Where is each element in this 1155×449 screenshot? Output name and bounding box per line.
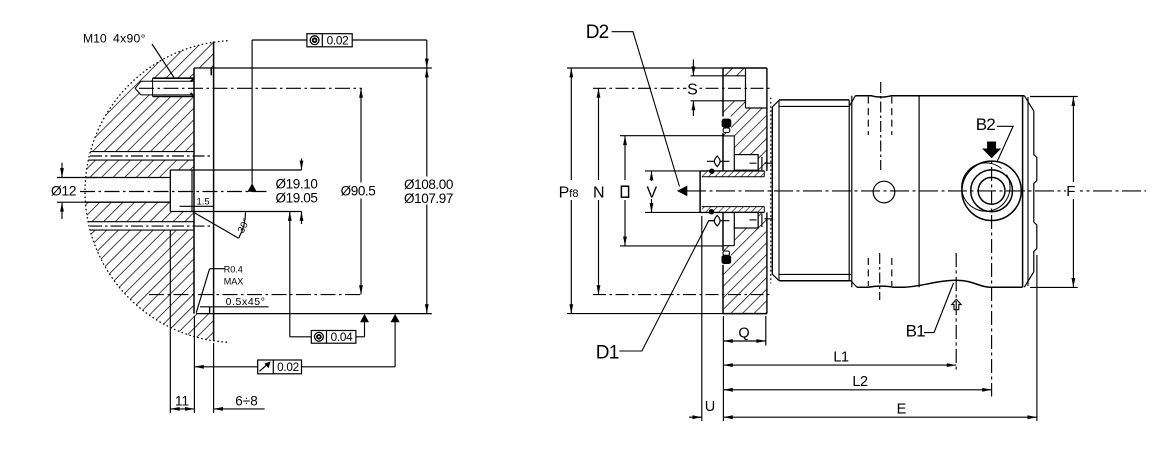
svg-text:B1: B1	[906, 321, 926, 340]
svg-text:P: P	[559, 184, 570, 201]
svg-text:N: N	[593, 184, 605, 201]
svg-text:0.5x45°: 0.5x45°	[226, 296, 266, 308]
svg-text:R0.4: R0.4	[224, 265, 243, 275]
svg-text:U: U	[705, 399, 715, 415]
svg-text:MAX: MAX	[224, 276, 244, 286]
svg-text:f8: f8	[569, 188, 578, 200]
svg-text:Ø108.00: Ø108.00	[404, 177, 453, 192]
svg-text:0.04: 0.04	[331, 330, 353, 344]
svg-text:S: S	[687, 81, 698, 98]
svg-text:B2: B2	[976, 115, 996, 134]
svg-text:M10: M10	[83, 32, 107, 46]
svg-text:D1: D1	[596, 343, 619, 364]
svg-text:Ø90.5: Ø90.5	[341, 183, 376, 198]
svg-text:0.02: 0.02	[277, 360, 299, 374]
svg-text:V: V	[646, 184, 657, 201]
svg-text:6÷8: 6÷8	[235, 394, 257, 409]
svg-text:F: F	[1066, 183, 1075, 200]
svg-text:L1: L1	[833, 349, 849, 365]
svg-text:Ø19.05: Ø19.05	[276, 191, 318, 206]
svg-text:Ø12: Ø12	[51, 183, 77, 199]
svg-text:11: 11	[175, 394, 189, 409]
svg-text:L2: L2	[852, 374, 868, 390]
svg-text:1.5: 1.5	[197, 196, 210, 207]
svg-text:0.02: 0.02	[327, 34, 349, 48]
svg-text:Q: Q	[738, 326, 749, 342]
svg-text:4x90°: 4x90°	[113, 32, 146, 46]
svg-text:Ø19.10: Ø19.10	[276, 177, 318, 192]
svg-text:D2: D2	[586, 22, 609, 43]
svg-text:Ø107.97: Ø107.97	[404, 191, 453, 206]
svg-text:E: E	[897, 401, 907, 417]
